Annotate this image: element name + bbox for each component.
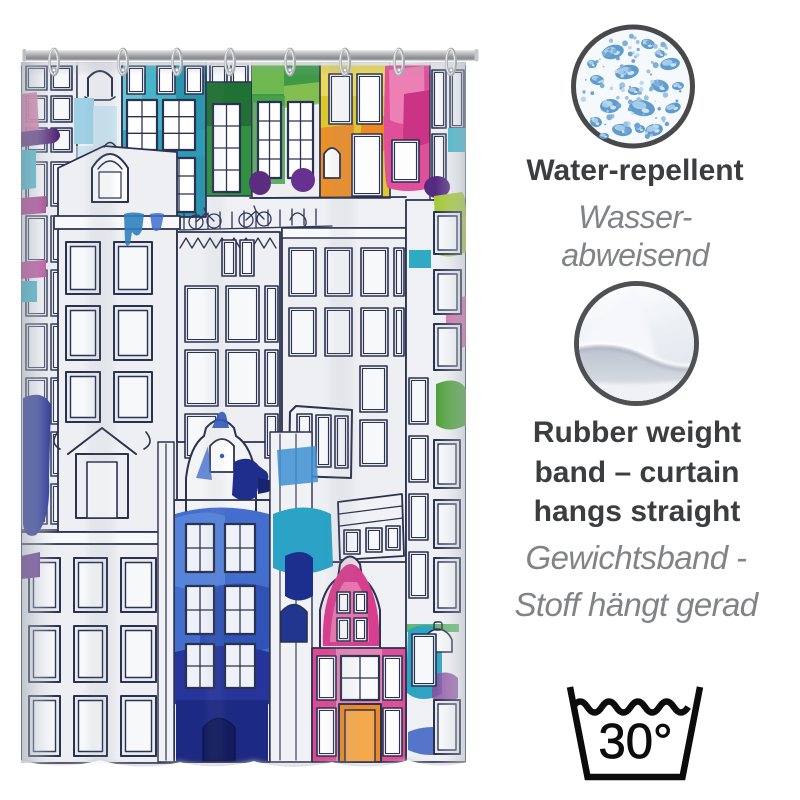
svg-text:30°: 30°	[598, 715, 672, 769]
